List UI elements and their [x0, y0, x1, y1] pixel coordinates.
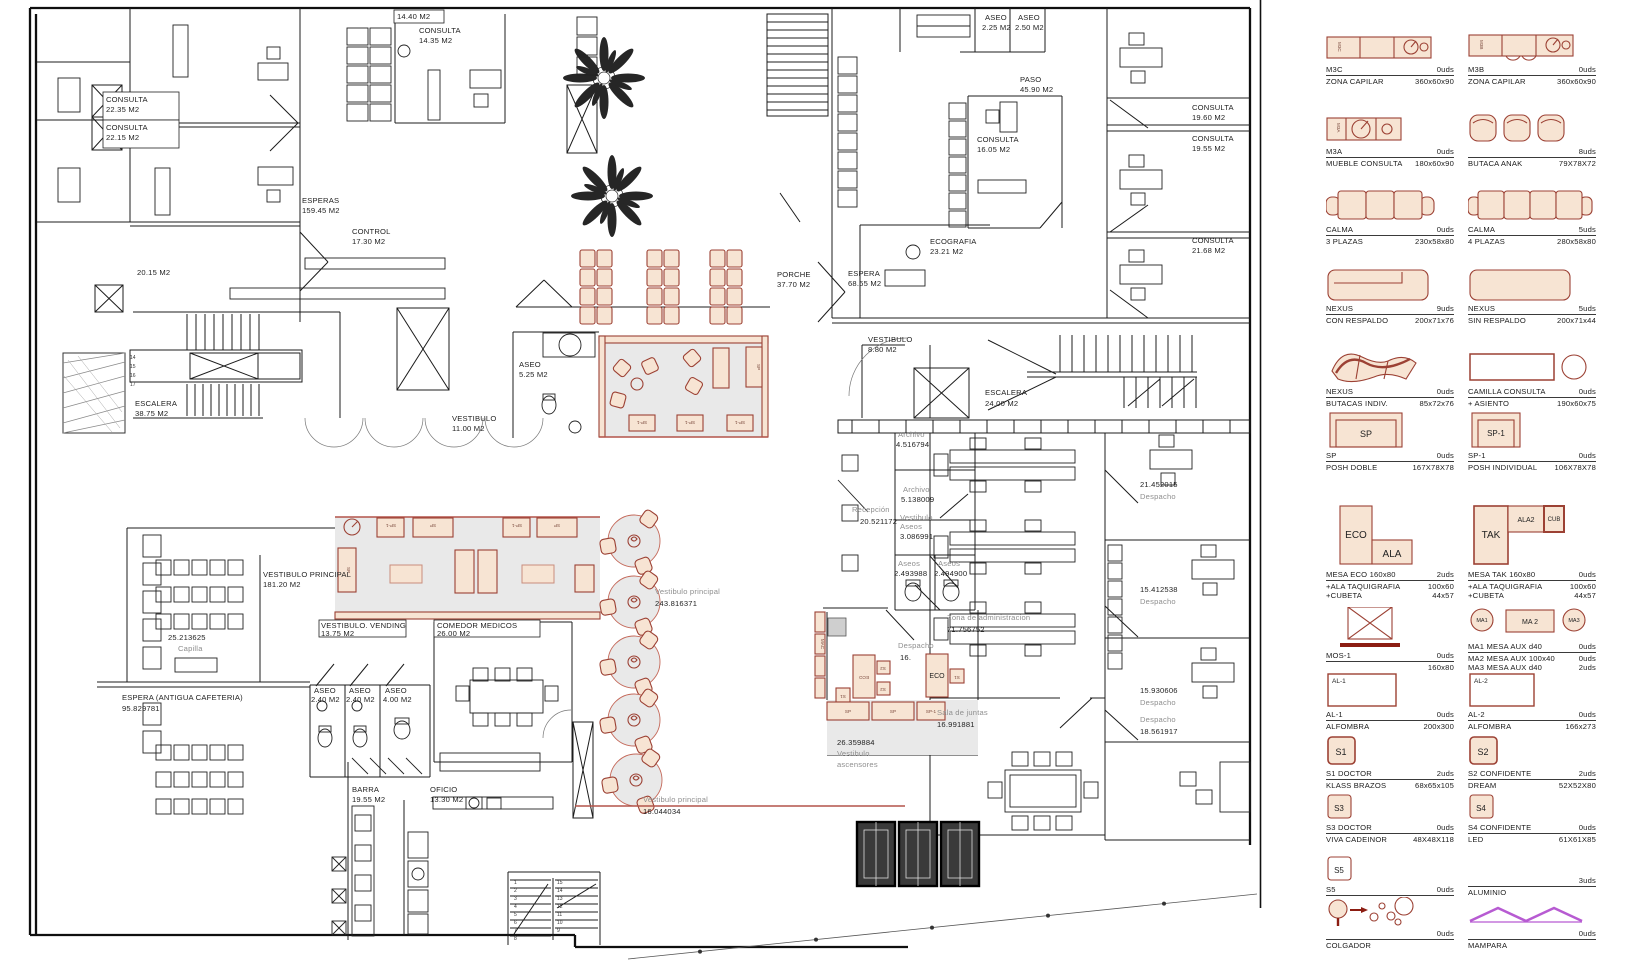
- room-label: 26.00 M2: [437, 629, 470, 638]
- legend-units: 0uds: [1579, 710, 1596, 719]
- legend-units: 0uds: [1437, 65, 1454, 74]
- legend-dims: 360x60x90: [1415, 77, 1454, 86]
- legend-desc: MUEBLE CONSULTA: [1326, 159, 1403, 168]
- sofa-tag: SP-1: [511, 523, 522, 528]
- room-label: 20.15 M2: [137, 268, 170, 277]
- room-label: 15.930606: [1140, 686, 1178, 695]
- room-label: 21.68 M2: [1192, 246, 1225, 255]
- legend-code: S5: [1326, 885, 1336, 894]
- bench-tag: SP: [845, 709, 851, 714]
- room-label: 23.21 M2: [930, 247, 963, 256]
- legend-item-colgador: 0uds COLGADOR: [1326, 897, 1454, 950]
- room-label: Aseos: [938, 559, 960, 568]
- chair-tag: S1: [954, 675, 960, 680]
- stair-number: 14: [130, 355, 136, 361]
- legend-row-7: ECO ALA MESA ECO 160x802uds +ALA TAQUIGR…: [1326, 472, 1644, 600]
- legend-desc: CON RESPALDO: [1326, 316, 1388, 325]
- room-label: 14.40 M2: [397, 12, 430, 21]
- stair-number: 5: [514, 912, 517, 918]
- room-label: 16.05 M2: [977, 145, 1010, 154]
- room-label: 17.30 M2: [352, 237, 385, 246]
- legend-units: 2uds: [1579, 769, 1596, 778]
- legend-code: S1 DOCTOR: [1326, 769, 1372, 778]
- stair-number: 4: [514, 904, 517, 910]
- room-label: BARRA: [352, 785, 380, 794]
- legend-units: 0uds: [1437, 387, 1454, 396]
- legend-dims: 200x71x44: [1557, 316, 1596, 325]
- room-label: 18.561917: [1140, 727, 1178, 736]
- legend-units: 0uds: [1579, 570, 1596, 579]
- legend-code: CALMA: [1326, 225, 1353, 234]
- desk-tag: ECO: [859, 675, 869, 680]
- legend-dims: 44x57: [1432, 591, 1454, 600]
- room-label: 19.55 M2: [352, 795, 385, 804]
- doctor-chair-icon: S3: [1326, 793, 1451, 821]
- legend-code: MOS-1: [1326, 651, 1351, 660]
- legend-dims: 360x60x90: [1557, 77, 1596, 86]
- room-label: Despacho: [1140, 715, 1176, 724]
- room-label: CONTROL: [352, 227, 391, 236]
- icon-tag: S5: [1334, 866, 1344, 875]
- legend-row-13: 0uds COLGADOR 0uds MAMPARA: [1326, 897, 1644, 950]
- room-label: ASEO: [314, 686, 336, 695]
- legend-code: M3A: [1326, 147, 1342, 156]
- stair-number: 11: [557, 912, 562, 918]
- legend-item-calma4: CALMA5uds 4 PLAZAS280x58x80: [1468, 168, 1596, 246]
- legend-desc: +ALA TAQUIGRAFIA: [1468, 582, 1542, 591]
- room-label: 95.829781: [122, 704, 160, 713]
- posh-individual-icon: SP-1: [1468, 411, 1593, 449]
- stair-number: 6: [514, 920, 517, 926]
- legend-code: M3C: [1326, 65, 1343, 74]
- room-label: Despacho: [1140, 698, 1176, 707]
- posh-doble-icon: SP: [1326, 411, 1451, 449]
- stair-number: 13: [557, 896, 563, 902]
- legend-desc: POSH INDIVIDUAL: [1468, 463, 1537, 472]
- legend-desc: VIVA CADEINOR: [1326, 835, 1387, 844]
- room-label: 2.25 M2: [982, 23, 1011, 32]
- bench-tag: SP-1: [926, 709, 937, 714]
- mac-tag: MAC: [820, 639, 825, 650]
- legend-row-3: CALMA0uds 3 PLAZAS230x58x80 CALMA5uds 4 …: [1326, 168, 1644, 246]
- legend-item-s4: S4 S4 CONFIDENTE0uds LED61X61X85: [1468, 790, 1596, 844]
- nexus-butacas-icon: [1326, 343, 1451, 385]
- chair-tag: S2: [880, 687, 886, 692]
- legend-units: 9uds: [1437, 304, 1454, 313]
- legend-code: NEXUS: [1326, 304, 1353, 313]
- legend-desc: + ASIENTO: [1468, 399, 1509, 408]
- legend-code: CAMILLA CONSULTA: [1468, 387, 1546, 396]
- room-label: 5.138009: [901, 495, 934, 504]
- legend-row-9: AL-1 AL-10uds ALFOMBRA200x300 AL-2 AL-20…: [1326, 672, 1644, 728]
- legend-code: AL-1: [1326, 710, 1343, 719]
- legend-dims: 180x60x90: [1415, 159, 1454, 168]
- room-label: Capilla: [178, 644, 203, 653]
- room-label: 16.: [900, 653, 911, 662]
- room-label: CONSULTA: [1192, 103, 1235, 112]
- icon-tag: MA1: [1476, 618, 1487, 624]
- legend-dims: 230x58x80: [1415, 237, 1454, 246]
- s5-chair-icon: S5: [1326, 855, 1451, 883]
- room-label: 2.493988: [894, 569, 927, 578]
- hatched-area: [63, 353, 125, 433]
- legend-dims: 190x60x75: [1557, 399, 1596, 408]
- room-label: ASEO: [349, 686, 371, 695]
- legend-dims: 200x71x76: [1415, 316, 1454, 325]
- room-label: 13.30 M2: [430, 795, 463, 804]
- room-label: Sala de juntas: [937, 708, 988, 717]
- room-label: 14.35 M2: [419, 36, 452, 45]
- boundary-dots: [698, 902, 1166, 954]
- legend-code: S2 CONFIDENTE: [1468, 769, 1531, 778]
- lift-bank: [857, 822, 979, 886]
- legend-dims: 167X78X78: [1413, 463, 1455, 472]
- room-label: CONSULTA: [106, 123, 149, 132]
- icon-tag: CUB: [1548, 517, 1561, 523]
- stair-number: 3: [514, 896, 517, 902]
- desk-tag: ECO: [929, 673, 945, 680]
- legend-units: 0uds: [1579, 451, 1596, 460]
- legend-dims: 48X48X118: [1413, 835, 1454, 844]
- room-label: ESCALERA: [985, 388, 1028, 397]
- bench-tag: SP: [890, 709, 896, 714]
- legend-desc: MA2 MESA AUX 100x40: [1468, 654, 1555, 663]
- legend-row-8: MOS-10uds 160x80 MA1 MA 2 MA3 MA1 MESA A…: [1326, 600, 1644, 672]
- room-label: 11.00 M2: [452, 424, 485, 433]
- legend-dims: 100x60: [1570, 582, 1596, 591]
- legend-dims: 79X78X72: [1559, 159, 1596, 168]
- room-label: 19.60 M2: [1192, 113, 1225, 122]
- room-label: CONSULTA: [419, 26, 462, 35]
- nexus-sin-respaldo-icon: [1468, 268, 1593, 302]
- room-label: 20.521172: [860, 517, 897, 526]
- icon-tag: M3A: [1336, 123, 1341, 133]
- room-label: ascensores: [837, 760, 878, 769]
- mampara-icon: [1468, 901, 1593, 927]
- mesa-aux-icon: MA1 MA 2 MA3: [1468, 604, 1593, 640]
- legend-item-al2: AL-2 AL-20uds ALFOMBRA166x273: [1468, 672, 1596, 731]
- legend-item-mesa-eco: ECO ALA MESA ECO 160x802uds +ALA TAQUIGR…: [1326, 472, 1454, 600]
- legend-desc: MA3 MESA AUX d40: [1468, 663, 1542, 672]
- icon-tag: SP-1: [1487, 429, 1505, 438]
- alfombra-icon: AL-2: [1468, 672, 1593, 708]
- colgador-icon: [1326, 897, 1451, 927]
- legend-dims: 2uds: [1579, 663, 1596, 672]
- legend-units: 0uds: [1579, 65, 1596, 74]
- legend-units: 0uds: [1579, 929, 1596, 938]
- room-label: ASEO: [1018, 13, 1040, 22]
- room-label: ASEO: [385, 686, 407, 695]
- nexus-con-respaldo-icon: [1326, 268, 1451, 302]
- legend-dims: 85x72x76: [1419, 399, 1454, 408]
- legend-units: 0uds: [1437, 823, 1454, 832]
- room-label: Recepción: [852, 505, 890, 514]
- room-label: 38.75 M2: [135, 409, 168, 418]
- chair-tag: S2: [880, 666, 886, 671]
- room-labels: CONSULTA 22.35 M2 CONSULTA 22.15 M2 ESPE…: [106, 12, 1235, 942]
- palm-tree-icon: [563, 37, 653, 237]
- legend-item-nexus-indiv: NEXUS0uds BUTACAS INDIV.85x72x76: [1326, 325, 1454, 408]
- room-label: 24.00 M2: [985, 399, 1018, 408]
- bench-tag: SP: [756, 364, 761, 370]
- legend-code: NEXUS: [1468, 304, 1495, 313]
- legend-item-mesa-tak: TAK ALA2 CUB MESA TAK 160x800uds +ALA TA…: [1468, 472, 1596, 600]
- legend-row-10: S1 S1 DOCTOR2uds KLASS BRAZOS68x65x105 S…: [1326, 728, 1644, 790]
- icon-tag: S2: [1477, 747, 1488, 757]
- furniture-legend: M3C M3C0uds ZONA CAPILAR360x60x90 M3B M3…: [1262, 0, 1644, 977]
- room-label: PORCHE: [777, 270, 811, 279]
- room-label: 21.452015: [1140, 480, 1178, 489]
- legend-item-s2: S2 S2 CONFIDENTE2uds DREAM52X52X80: [1468, 728, 1596, 790]
- sofa-tag: SP: [554, 523, 560, 528]
- legend-units: 8uds: [1579, 147, 1596, 156]
- legend-units: 5uds: [1579, 225, 1596, 234]
- legend-units: 2uds: [1437, 769, 1454, 778]
- legend-row-1: M3C M3C0uds ZONA CAPILAR360x60x90 M3B M3…: [1326, 14, 1644, 86]
- room-label: 22.15 M2: [106, 133, 139, 142]
- room-label: CONSULTA: [106, 95, 149, 104]
- legend-units: 0uds: [1437, 147, 1454, 156]
- room-label: 8.80 M2: [868, 345, 897, 354]
- legend-desc: +CUBETA: [1468, 591, 1504, 600]
- legend-code: MESA TAK 160x80: [1468, 570, 1535, 579]
- room-label: Zona de administracion: [947, 613, 1030, 622]
- room-label: ESPERA (ANTIGUA CAFETERIA): [122, 693, 243, 702]
- legend-units: 0uds: [1437, 451, 1454, 460]
- legend-row-4: NEXUS9uds CON RESPALDO200x71x76 NEXUS5ud…: [1326, 246, 1644, 325]
- legend-desc: ZONA CAPILAR: [1326, 77, 1384, 86]
- stair-number: 1: [514, 880, 517, 886]
- room-label: ASEO: [519, 360, 541, 369]
- room-label: 2.50 M2: [1015, 23, 1044, 32]
- legend-dims: 44x57: [1574, 591, 1596, 600]
- mueble-consulta-icon: M3A: [1326, 113, 1451, 145]
- sofa-tag: SP-1: [385, 523, 396, 528]
- legend-units: 2uds: [1437, 570, 1454, 579]
- legend-units: 0uds: [1437, 225, 1454, 234]
- legend-units: 0uds: [1437, 929, 1454, 938]
- legend-code: SP-1: [1468, 451, 1486, 460]
- room-label: 16.991881: [937, 720, 975, 729]
- legend-desc: ALUMINIO: [1468, 888, 1506, 897]
- room-label: Vestibulo: [900, 513, 933, 522]
- room-label: 181.20 M2: [263, 580, 301, 589]
- legend-units: 0uds: [1437, 651, 1454, 660]
- legend-desc: DREAM: [1468, 781, 1496, 790]
- legend-row-2: M3A M3A0uds MUEBLE CONSULTA180x60x90 8ud…: [1326, 86, 1644, 168]
- room-label: 16.044034: [643, 807, 681, 816]
- legend-item-s3: S3 S3 DOCTOR0uds VIVA CADEINOR48X48X118: [1326, 790, 1454, 844]
- room-label: OFICIO: [430, 785, 457, 794]
- stair-number: 14: [557, 888, 563, 894]
- camilla-consulta-icon: [1468, 349, 1593, 385]
- room-label: VESTIBULO: [452, 414, 496, 423]
- room-label: 2.40 M2: [346, 695, 375, 704]
- legend-desc: 4 PLAZAS: [1468, 237, 1505, 246]
- legend-dims: 52X52X80: [1559, 781, 1596, 790]
- legend-item-butaca-anak: 8uds BUTACA ANAK79X78X72: [1468, 86, 1596, 168]
- legend-desc: +ALA TAQUIGRAFIA: [1326, 582, 1400, 591]
- room-label: Despacho: [1140, 597, 1176, 606]
- room-label: 13.75 M2: [321, 629, 354, 638]
- legend-code: SP: [1326, 451, 1337, 460]
- room-label: ECOGRAFIA: [930, 237, 977, 246]
- calma-4-icon: [1468, 187, 1593, 223]
- legend-code: CALMA: [1468, 225, 1495, 234]
- icon-tag: S4: [1476, 804, 1486, 813]
- icon-tag: S3: [1334, 804, 1344, 813]
- stair-number: 15: [557, 880, 563, 886]
- icon-tag: TAK: [1482, 530, 1501, 541]
- doctor-chair-icon: S1: [1326, 735, 1451, 767]
- stair-number: 7: [514, 928, 517, 934]
- room-label: 2.494900: [934, 569, 967, 578]
- room-label: 4.516794: [896, 440, 929, 449]
- legend-item-aluminio: 3uds ALUMINIO: [1468, 844, 1596, 897]
- butaca-anak-icon: [1468, 111, 1593, 145]
- room-label: ASEO: [985, 13, 1007, 22]
- legend-code: S3 DOCTOR: [1326, 823, 1372, 832]
- legend-item-sp1: SP-1 SP-10uds POSH INDIVIDUAL106X78X78: [1468, 408, 1596, 472]
- room-label: Vestibulo: [837, 749, 870, 758]
- icon-tag: MA 2: [1522, 619, 1538, 626]
- icon-tag: ALA2: [1517, 517, 1534, 524]
- legend-desc: ZONA CAPILAR: [1468, 77, 1526, 86]
- stair-number: 17: [130, 382, 136, 388]
- icon-tag: AL-1: [1332, 678, 1346, 685]
- legend-item-m3b: M3B M3B0uds ZONA CAPILAR360x60x90: [1468, 14, 1596, 86]
- room-label: 2.40 M2: [311, 695, 340, 704]
- legend-item-s5: S5 S50uds: [1326, 844, 1454, 897]
- legend-units: 0uds: [1437, 885, 1454, 894]
- legend-desc: MAMPARA: [1468, 941, 1507, 950]
- legend-desc: COLGADOR: [1326, 941, 1371, 950]
- room-label: 4.00 M2: [383, 695, 412, 704]
- stair-number: 15: [130, 364, 136, 370]
- legend-dims: 280x58x80: [1557, 237, 1596, 246]
- legend-units: 5uds: [1579, 304, 1596, 313]
- room-label: Vestibulo principal: [643, 795, 708, 804]
- icon-tag: AL-2: [1474, 678, 1488, 685]
- legend-item-camilla: CAMILLA CONSULTA0uds + ASIENTO190x60x75: [1468, 325, 1596, 408]
- room-label: Despacho: [1140, 492, 1176, 501]
- legend-desc: +CUBETA: [1326, 591, 1362, 600]
- room-label: 3.086991: [900, 532, 933, 541]
- room-label: VESTIBULO: [868, 335, 912, 344]
- legend-units: 3uds: [1579, 876, 1596, 885]
- legend-code: MESA ECO 160x80: [1326, 570, 1396, 579]
- legend-dims: 160x80: [1428, 663, 1454, 672]
- room-label: ESCALERA: [135, 399, 178, 408]
- room-label: Archivo: [903, 485, 930, 494]
- icon-tag: ECO: [1345, 530, 1367, 541]
- confidente-chair-icon: S2: [1468, 735, 1593, 767]
- icon-tag: MA3: [1568, 618, 1579, 624]
- room-label: Vestibulo principal: [655, 587, 720, 596]
- icon-tag: SP: [1360, 429, 1372, 439]
- legend-units: 0uds: [1437, 710, 1454, 719]
- icon-tag: S1: [1335, 747, 1346, 757]
- legend-code: NEXUS: [1326, 387, 1353, 396]
- confidente-chair-icon: S4: [1468, 793, 1593, 821]
- legend-item-m3a: M3A M3A0uds MUEBLE CONSULTA180x60x90: [1326, 86, 1454, 168]
- legend-item-m3c: M3C M3C0uds ZONA CAPILAR360x60x90: [1326, 14, 1454, 86]
- legend-item-nexus-resp: NEXUS9uds CON RESPALDO200x71x76: [1326, 246, 1454, 325]
- legend-desc: SIN RESPALDO: [1468, 316, 1526, 325]
- legend-units: 0uds: [1579, 823, 1596, 832]
- legend-item-mos1: MOS-10uds 160x80: [1326, 600, 1454, 672]
- alfombra-icon: AL-1: [1326, 672, 1451, 708]
- room-label: Aseos: [900, 522, 922, 531]
- room-label: 71.756752: [947, 625, 985, 634]
- legend-dims: 68x65x105: [1415, 781, 1454, 790]
- room-label: ESPERAS: [302, 196, 339, 205]
- stair-number: 2: [514, 888, 517, 894]
- room-label: 22.35 M2: [106, 105, 139, 114]
- room-label: 19.55 M2: [1192, 144, 1225, 153]
- room-label: CONSULTA: [1192, 134, 1235, 143]
- floor-plan-drawing: SP SP-1 SP-1 SP-1 SP-1 SP SP-1 SP SP MAC…: [0, 0, 1262, 977]
- room-label: Despacho: [898, 641, 934, 650]
- room-label: 25.213625: [168, 633, 206, 642]
- legend-desc: LED: [1468, 835, 1483, 844]
- legend-item-calma3: CALMA0uds 3 PLAZAS230x58x80: [1326, 168, 1454, 246]
- mos-1-icon: [1326, 607, 1451, 649]
- room-label: CONSULTA: [1192, 236, 1235, 245]
- stair-number: 12: [557, 904, 563, 910]
- calma-3-icon: [1326, 187, 1451, 223]
- legend-row-6: SP SP0uds POSH DOBLE167X78X78 SP-1 SP-10…: [1326, 408, 1644, 472]
- cad-floorplan-screenshot: SP SP-1 SP-1 SP-1 SP-1 SP SP-1 SP SP MAC…: [0, 0, 1644, 977]
- legend-dims: 0uds: [1579, 654, 1596, 663]
- legend-row-12: S5 S50uds 3uds ALUMINIO: [1326, 844, 1644, 897]
- legend-item-al1: AL-1 AL-10uds ALFOMBRA200x300: [1326, 672, 1454, 731]
- room-label: Archivo: [898, 430, 925, 439]
- legend-desc: 3 PLAZAS: [1326, 237, 1363, 246]
- zona-capilar-icon: M3B: [1468, 33, 1593, 63]
- stair-number: 16: [130, 373, 136, 379]
- legend-code: M3B: [1468, 65, 1484, 74]
- legend-dims: 100x60: [1428, 582, 1454, 591]
- bench-tag: SP-1: [734, 420, 745, 425]
- room-label: 15.412538: [1140, 585, 1178, 594]
- legend-desc: BUTACAS INDIV.: [1326, 399, 1388, 408]
- room-label: CONSULTA: [977, 135, 1020, 144]
- legend-code: MA1 MESA AUX d40: [1468, 642, 1542, 651]
- room-label: 159.45 M2: [302, 206, 340, 215]
- chair-tag: S1: [840, 694, 846, 699]
- room-label: 37.70 M2: [777, 280, 810, 289]
- legend-dims: 106X78X78: [1555, 463, 1597, 472]
- legend-desc: KLASS BRAZOS: [1326, 781, 1386, 790]
- legend-desc: POSH DOBLE: [1326, 463, 1377, 472]
- zona-capilar-icon: M3C: [1326, 33, 1451, 63]
- legend-dims: 61X61X85: [1559, 835, 1596, 844]
- legend-item-ma: MA1 MA 2 MA3 MA1 MESA AUX d400uds MA2 ME…: [1468, 600, 1596, 672]
- icon-tag: ALA: [1383, 549, 1402, 560]
- icon-tag: M3B: [1479, 40, 1484, 49]
- bench-tag: SP-1: [636, 420, 647, 425]
- room-label: ESPERA: [848, 269, 881, 278]
- legend-item-nexus-sin: NEXUS5uds SIN RESPALDO200x71x44: [1468, 246, 1596, 325]
- stair-number: 9: [557, 928, 560, 934]
- room-label: 68.65 M2: [848, 279, 881, 288]
- mesa-eco-icon: ECO ALA: [1326, 504, 1451, 568]
- room-label: 243.816371: [655, 599, 697, 608]
- icon-tag: M3C: [1337, 42, 1342, 52]
- legend-item-sp: SP SP0uds POSH DOBLE167X78X78: [1326, 408, 1454, 472]
- room-label: PASO: [1020, 75, 1041, 84]
